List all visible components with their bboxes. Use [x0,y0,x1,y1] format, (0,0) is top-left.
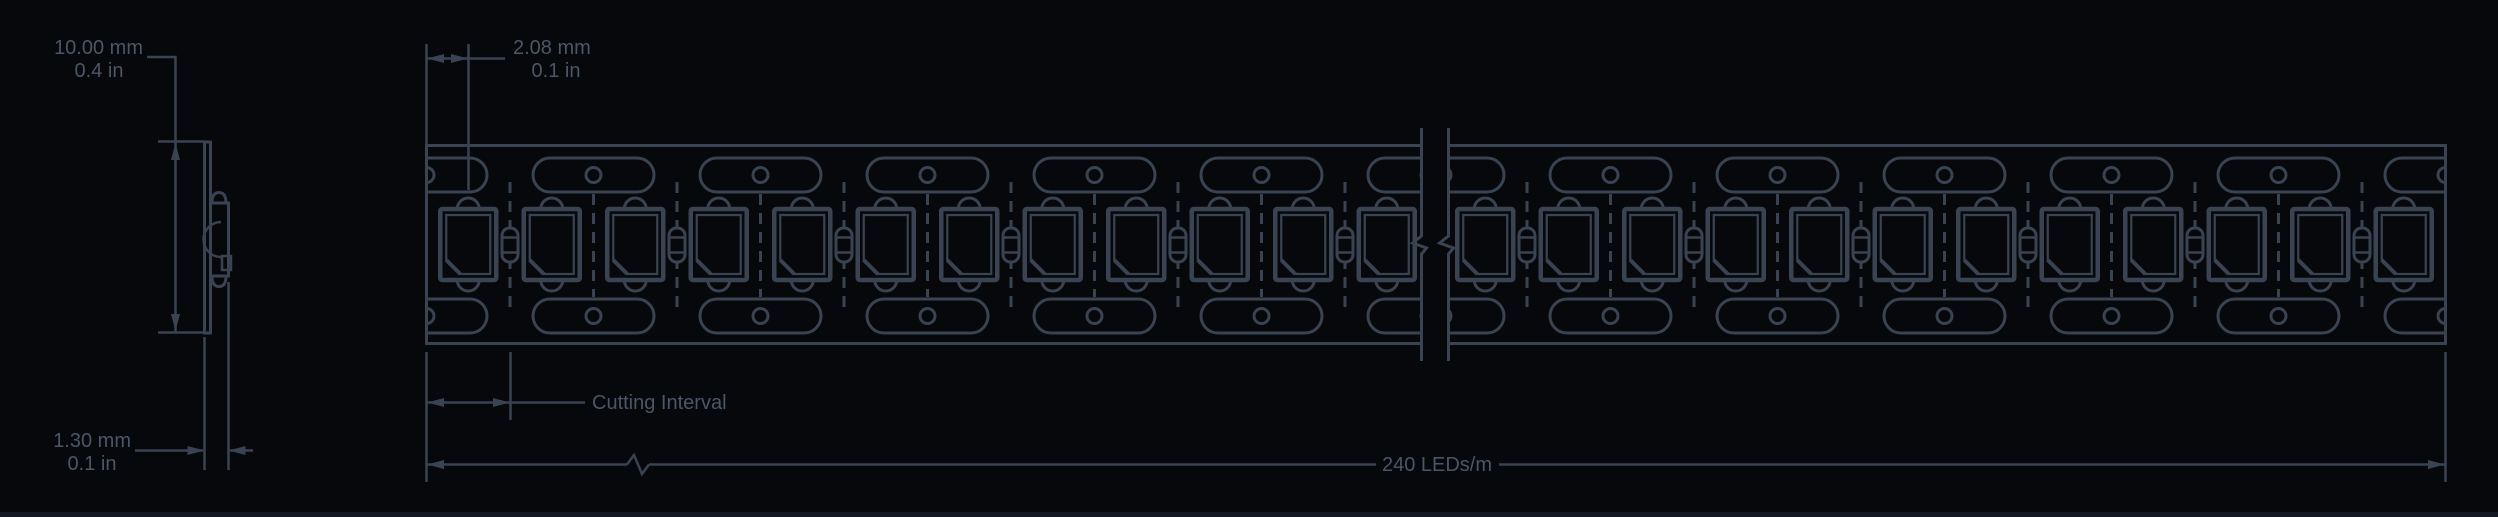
dimension-arrow-pitch-left [427,54,444,63]
solder-pad-oval-bottom [1550,299,1671,333]
resistor-body [669,228,685,262]
solder-pad-oval-top [1884,158,2005,192]
led-package-body [1025,209,1081,280]
dimension-arrow-density-right [2428,460,2445,469]
solder-pad-oval-bottom [1201,299,1322,333]
solder-pad-oval-bottom [2051,299,2172,333]
pad-hole-bottom [1421,309,1436,324]
solder-pad-oval-top [700,158,821,192]
resistor-body [1519,228,1535,262]
led-package-body [1457,209,1513,280]
strip-pattern-left-section [366,158,1489,333]
led-package-body [1108,209,1164,280]
dimension-arrow-width-bottom [171,314,180,331]
solder-pad-oval-bottom [533,299,654,333]
resistor-body [1686,228,1702,262]
solder-pad-oval-bottom [700,299,821,333]
led-package-body [858,209,914,280]
solder-pad-oval-top [1550,158,1671,192]
resistor-body [1853,228,1869,262]
resistor-body [2187,228,2203,262]
dimension-arrow-thickness-right [229,446,246,455]
solder-pad-oval-top [1034,158,1155,192]
led-package-body [2042,209,2098,280]
led-package-body [691,209,747,280]
led-package-body [1875,209,1931,280]
led-package-body [1708,209,1764,280]
solder-pad-oval-top [1717,158,1838,192]
strip-thickness-in-label: 0.1 in [68,453,117,475]
resistor-body [502,228,518,262]
dimension-arrow-cut-right [493,398,510,407]
side-view-lens-bump-bottom [212,276,226,287]
dim-density-break-zigzag [627,455,649,474]
solder-pad-oval-bottom [2218,299,2339,333]
led-package-body [1359,209,1415,280]
solder-pad-oval-top [1201,158,1322,192]
strip-width-in-label: 0.4 in [75,60,124,82]
resistor-body [1337,228,1353,262]
solder-pad-oval-top [2051,158,2172,192]
resistor-body [2354,228,2370,262]
cutting-interval-label: Cutting Interval [592,392,727,414]
led-package-body [607,209,663,280]
solder-pad-oval-top [2385,158,2498,192]
led-package-body [524,209,580,280]
solder-pad-oval-top [2218,158,2339,192]
resistor-body [2020,228,2036,262]
dimension-arrow-width-top [171,143,180,160]
led-package-body [1624,209,1680,280]
resistor-body [1170,228,1186,262]
solder-pad-oval-bottom [1034,299,1155,333]
dim-width-leader [147,57,176,332]
strip-pattern-right-section [1383,158,2498,333]
dimension-arrow-thickness-left [188,446,205,455]
side-view-lens-bump-top [212,193,226,204]
solder-pad-oval-bottom [2385,299,2498,333]
strip-width-mm-label: 10.00 mm [54,37,143,59]
solder-pad-oval-top [867,158,988,192]
led-package-body [2209,209,2265,280]
strip-thickness-mm-label: 1.30 mm [53,430,131,452]
resistor-body [1003,228,1019,262]
dimension-arrow-density-left [427,460,444,469]
led-package-body [2125,209,2181,280]
led-package-body [1541,209,1597,280]
solder-pad-oval-top [533,158,654,192]
led-density-label: 240 LEDs/m [1382,454,1492,476]
led-pitch-mm-label: 2.08 mm [513,37,591,59]
drawing-canvas: 10.00 mm 0.4 in 2.08 mm 0.1 in 1.30 mm 0… [0,0,2498,517]
resistor-body [836,228,852,262]
solder-pad-oval-bottom [1717,299,1838,333]
pad-hole-top [1421,168,1436,183]
led-package-body [1275,209,1331,280]
dimension-arrow-cut-left [427,398,444,407]
led-package-body [1192,209,1248,280]
led-package-body [2376,209,2432,280]
led-package-body [774,209,830,280]
solder-pad-oval-bottom [867,299,988,333]
led-package-body [440,209,496,280]
led-package-body [2292,209,2348,280]
side-view-led-package [211,203,229,276]
window-bottom-edge [0,512,2498,517]
led-package-body [941,209,997,280]
solder-pad-oval-bottom [1884,299,2005,333]
led-package-body [1958,209,2014,280]
led-package-body [1791,209,1847,280]
dimension-arrow-pitch-right [451,54,468,63]
led-pitch-in-label: 0.1 in [532,60,581,82]
led-strip-dimension-drawing: 10.00 mm 0.4 in 2.08 mm 0.1 in 1.30 mm 0… [0,0,2498,517]
side-view-lens-arc [204,222,222,257]
